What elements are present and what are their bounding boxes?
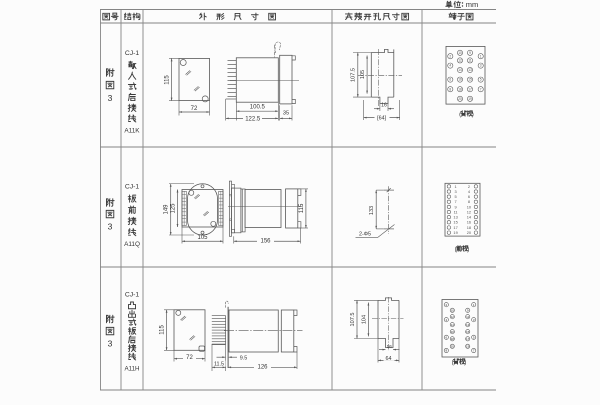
svg-text:107.5: 107.5 — [350, 313, 356, 327]
svg-text:14: 14 — [451, 323, 455, 327]
svg-text:9.5: 9.5 — [240, 355, 248, 361]
svg-text:CJ-1: CJ-1 — [125, 184, 140, 191]
svg-text:A11Q: A11Q — [124, 241, 140, 248]
svg-text:115: 115 — [299, 203, 305, 213]
svg-text:4: 4 — [445, 318, 447, 322]
svg-text:7: 7 — [480, 87, 482, 91]
svg-text:1: 1 — [480, 54, 482, 58]
svg-text:6: 6 — [449, 78, 451, 82]
svg-text:20: 20 — [451, 344, 455, 348]
svg-text:20: 20 — [458, 97, 462, 101]
svg-text:[64]: [64] — [377, 116, 386, 122]
svg-text:115: 115 — [159, 325, 165, 335]
svg-text:105: 105 — [197, 235, 208, 241]
svg-text:): ) — [467, 246, 469, 253]
svg-text:CJ-1: CJ-1 — [125, 50, 140, 57]
svg-text:5: 5 — [480, 78, 482, 82]
svg-text:19: 19 — [466, 344, 470, 348]
svg-text:72: 72 — [186, 355, 193, 361]
svg-text:105: 105 — [360, 70, 366, 79]
svg-text:10: 10 — [458, 51, 462, 55]
svg-text:18: 18 — [451, 337, 455, 341]
svg-text:3: 3 — [108, 222, 113, 232]
svg-text:): ) — [472, 111, 474, 118]
svg-text:15: 15 — [468, 78, 472, 82]
svg-text:16: 16 — [387, 344, 393, 350]
svg-text:19: 19 — [453, 230, 457, 235]
svg-text:12: 12 — [458, 59, 462, 63]
svg-text:115: 115 — [164, 75, 170, 85]
svg-text:133: 133 — [369, 206, 375, 215]
svg-text:4: 4 — [449, 64, 451, 68]
svg-text:19: 19 — [468, 97, 472, 101]
svg-text:2: 2 — [449, 54, 451, 58]
svg-text:15: 15 — [466, 330, 470, 334]
svg-text:): ) — [464, 359, 466, 366]
svg-text:2: 2 — [445, 303, 447, 307]
svg-text:CJ-1: CJ-1 — [125, 292, 140, 299]
svg-text:8: 8 — [449, 87, 451, 91]
svg-text:64: 64 — [386, 356, 392, 362]
svg-text:3: 3 — [108, 339, 113, 349]
svg-text:A11K: A11K — [124, 128, 140, 135]
svg-text:11: 11 — [466, 315, 469, 319]
svg-text:149: 149 — [164, 204, 170, 215]
svg-text:7: 7 — [473, 349, 475, 353]
svg-text:2-Φ5: 2-Φ5 — [359, 232, 371, 238]
svg-text:13: 13 — [466, 323, 470, 327]
svg-text:11.5: 11.5 — [214, 362, 224, 368]
svg-text:17: 17 — [468, 87, 472, 91]
svg-text:122.5: 122.5 — [245, 116, 261, 122]
svg-text:9: 9 — [467, 308, 469, 312]
svg-text:5: 5 — [473, 335, 475, 339]
svg-text:17: 17 — [466, 337, 470, 341]
svg-text:10: 10 — [451, 308, 455, 312]
svg-text:14: 14 — [458, 68, 462, 72]
svg-text:A11H: A11H — [124, 366, 139, 373]
svg-text:35: 35 — [283, 111, 289, 117]
svg-text:1: 1 — [473, 303, 475, 307]
svg-text:mm: mm — [466, 0, 479, 9]
svg-text:18: 18 — [458, 87, 462, 91]
svg-text:6: 6 — [445, 335, 447, 339]
svg-text:72: 72 — [191, 106, 198, 112]
svg-text:20: 20 — [467, 230, 472, 235]
svg-text:104: 104 — [361, 315, 367, 324]
svg-text:11: 11 — [468, 59, 472, 63]
svg-text:3: 3 — [480, 64, 482, 68]
svg-text:156: 156 — [260, 238, 271, 244]
svg-text:8: 8 — [445, 349, 447, 353]
svg-text:9: 9 — [469, 51, 471, 55]
svg-text:13: 13 — [468, 68, 472, 72]
svg-text:107.5: 107.5 — [351, 68, 357, 82]
svg-text:3: 3 — [473, 318, 475, 322]
svg-text:12: 12 — [451, 315, 455, 319]
svg-text:126: 126 — [257, 364, 268, 370]
svg-text:100.5: 100.5 — [250, 105, 266, 111]
svg-text:16: 16 — [451, 330, 455, 334]
svg-text:3: 3 — [108, 93, 113, 103]
svg-text:16: 16 — [458, 78, 462, 82]
svg-text:125: 125 — [171, 203, 177, 214]
svg-text:16: 16 — [381, 102, 387, 108]
